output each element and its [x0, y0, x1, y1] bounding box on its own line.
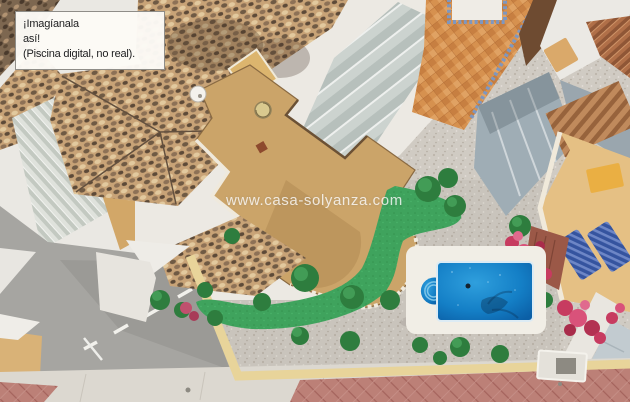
manhole — [186, 388, 191, 393]
spiral-staircase — [255, 102, 271, 118]
satellite-dish — [190, 86, 206, 102]
satellite-dish-arm — [198, 94, 202, 98]
caption-line-2: así! — [23, 32, 157, 47]
caption-line-1: ¡Imagíanala — [23, 17, 157, 32]
caption-line-3: (Piscina digital, no real). — [23, 47, 157, 62]
watermark: www.casa-solyanza.com — [226, 192, 403, 209]
pool-cleaner — [466, 284, 471, 289]
aerial-photo: ¡Imagíanala así! (Piscina digital, no re… — [0, 0, 630, 402]
swimming-pool-area — [400, 246, 546, 334]
caption-overlay: ¡Imagíanala así! (Piscina digital, no re… — [15, 11, 165, 70]
shed-interior — [556, 358, 576, 374]
patio-inset — [452, 0, 502, 20]
manhole — [558, 382, 562, 386]
